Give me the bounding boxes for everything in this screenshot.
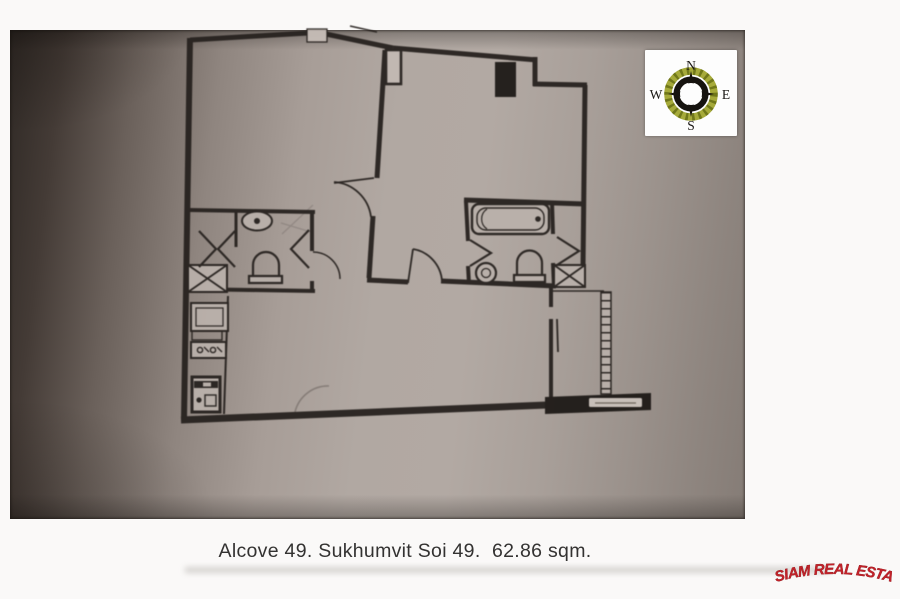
floor-plan-walls <box>181 26 651 420</box>
floor-plan-svg <box>0 0 900 599</box>
watermark-text: SIAM REAL ESTATE <box>773 545 894 586</box>
compass-rose-icon: N S W E <box>645 50 737 136</box>
caption: Alcove 49. Sukhumvit Soi 49. 62.86 sqm. <box>0 540 810 563</box>
compass-letter-w: W <box>650 87 663 102</box>
compass-rose: N S W E <box>645 50 737 136</box>
compass-letter-n: N <box>686 58 696 73</box>
watermark-logo: SIAM REAL ESTATE <box>773 545 895 597</box>
compass-letter-s: S <box>687 118 695 133</box>
compass-ring-center <box>680 83 702 105</box>
scan-shadow <box>185 567 830 573</box>
compass-letter-e: E <box>722 87 730 102</box>
